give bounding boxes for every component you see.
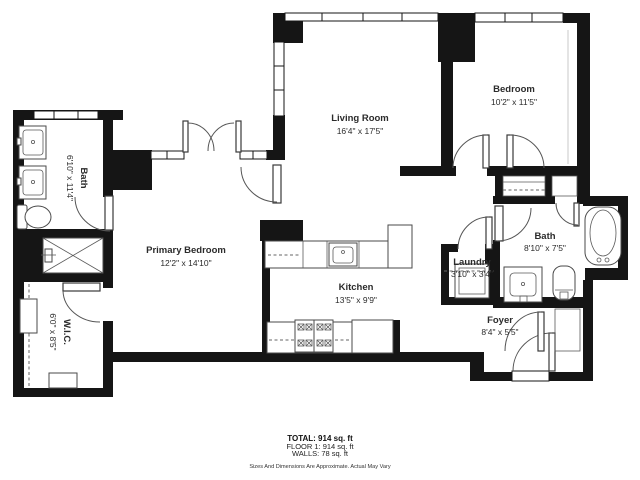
svg-text:12'2" x 14'10": 12'2" x 14'10" [160, 258, 211, 268]
bedroom-closets [503, 176, 577, 196]
svg-text:3'10" x 3'4": 3'10" x 3'4" [451, 269, 493, 279]
foyer-closet [555, 309, 580, 351]
svg-text:Bath: Bath [534, 231, 555, 242]
svg-text:Living Room: Living Room [331, 113, 389, 124]
svg-text:6'10" x 11'4": 6'10" x 11'4" [65, 155, 75, 201]
svg-text:Foyer: Foyer [487, 315, 513, 326]
room-label-bedroom: Bedroom 10'2" x 11'5" [491, 84, 537, 107]
room-label-living-room: Living Room 16'4" x 17'5" [331, 113, 389, 136]
svg-text:W.I.C.: W.I.C. [61, 319, 72, 345]
svg-text:8'4" x 5'5": 8'4" x 5'5" [481, 327, 518, 337]
room-label-bath-primary: Bath 6'10" x 11'4" [65, 155, 89, 201]
floor-plan-svg: Living Room 16'4" x 17'5" Bedroom 10'2" … [0, 0, 640, 480]
room-label-bath-hall: Bath 8'10" x 7'5" [524, 231, 566, 253]
footer-summary: TOTAL: 914 sq. ft FLOOR 1: 914 sq. ft WA… [249, 434, 391, 470]
room-label-kitchen: Kitchen 13'5" x 9'9" [335, 282, 377, 305]
svg-text:6'0" x 8'5": 6'0" x 8'5" [48, 313, 58, 350]
walls-area: WALLS: 78 sq. ft [292, 449, 349, 458]
svg-text:8'10" x 7'5": 8'10" x 7'5" [524, 243, 566, 253]
room-label-primary-bedroom: Primary Bedroom 12'2" x 14'10" [146, 245, 226, 268]
svg-text:13'5" x 9'9": 13'5" x 9'9" [335, 295, 377, 305]
bath-sink [504, 267, 542, 302]
bathtub [585, 207, 621, 265]
svg-text:Bath: Bath [78, 167, 89, 188]
svg-text:Bedroom: Bedroom [493, 84, 535, 95]
svg-text:Kitchen: Kitchen [339, 282, 374, 293]
kitchen-stove [267, 320, 393, 353]
floor-plan: Living Room 16'4" x 17'5" Bedroom 10'2" … [0, 0, 640, 480]
svg-text:16'4" x 17'5": 16'4" x 17'5" [337, 126, 384, 136]
room-label-wic: W.I.C. 6'0" x 8'5" [48, 313, 72, 350]
svg-text:Laundry: Laundry [453, 257, 491, 268]
svg-text:Primary Bedroom: Primary Bedroom [146, 245, 226, 256]
svg-text:10'2" x 11'5": 10'2" x 11'5" [491, 97, 537, 107]
toilet [17, 205, 51, 229]
disclaimer: Sizes And Dimensions Are Approximate. Ac… [249, 464, 391, 470]
shower [41, 238, 103, 273]
toilet-2 [553, 266, 575, 300]
